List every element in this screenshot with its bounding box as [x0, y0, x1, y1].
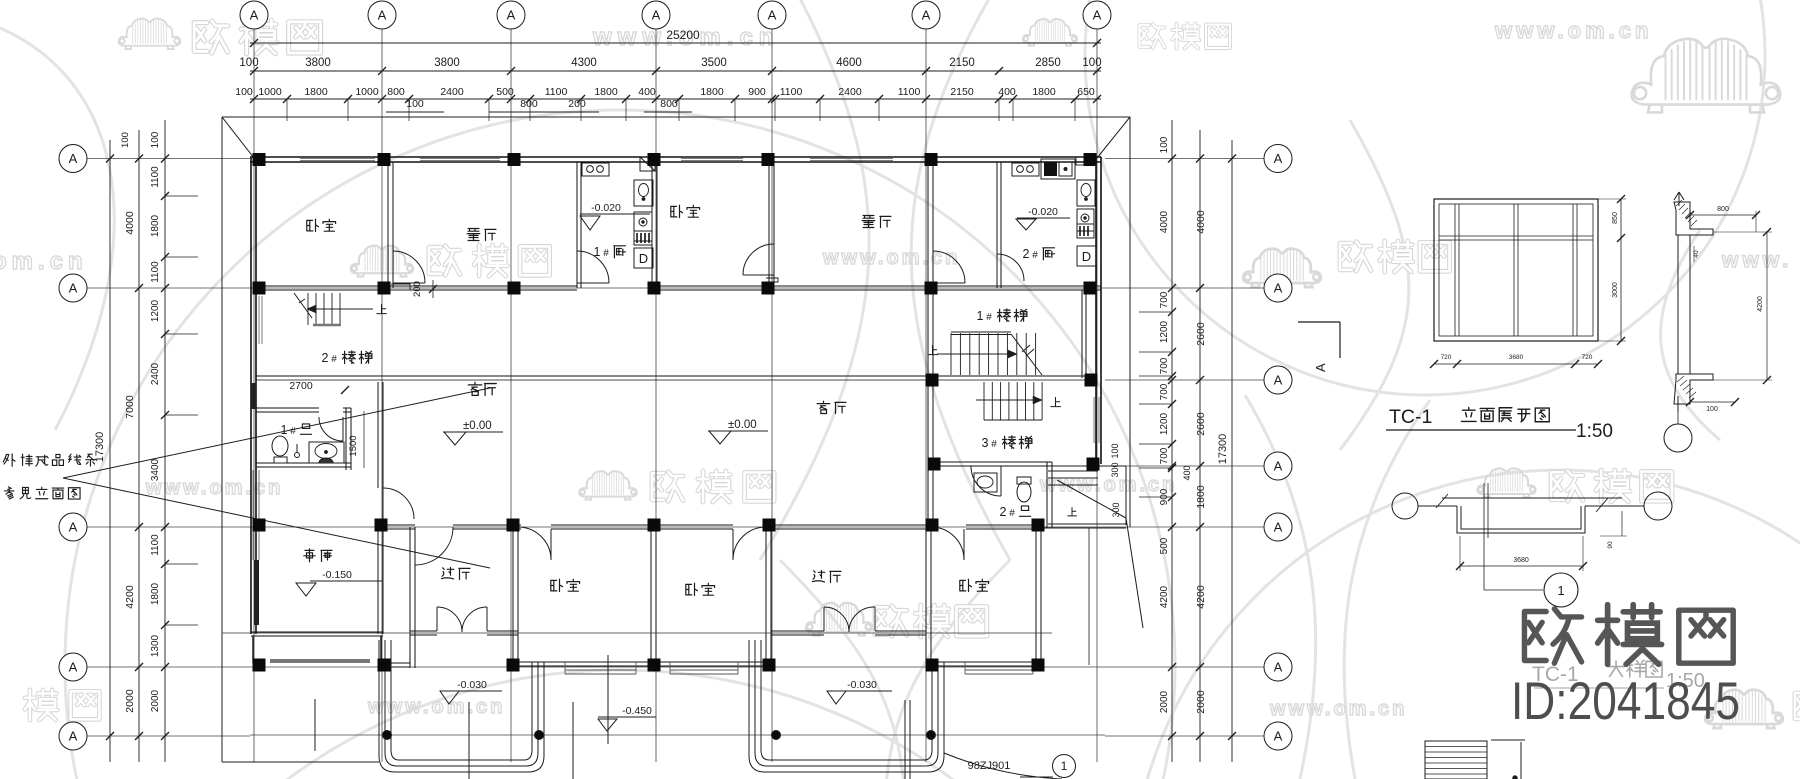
svg-text:1200: 1200: [1159, 320, 1170, 343]
svg-text:3800: 3800: [434, 57, 460, 69]
svg-text:2000: 2000: [1195, 690, 1207, 714]
svg-text:1: 1: [281, 423, 288, 437]
svg-text:3500: 3500: [701, 57, 727, 69]
svg-text:-0.020: -0.020: [591, 202, 621, 214]
svg-text:-0.030: -0.030: [847, 679, 877, 691]
svg-text:A: A: [250, 8, 259, 23]
svg-text:900: 900: [748, 86, 766, 98]
svg-text:40: 40: [1693, 250, 1700, 258]
svg-text:www.: www.: [1721, 249, 1792, 272]
svg-text:100: 100: [235, 86, 253, 98]
svg-text:-0.150: -0.150: [322, 569, 352, 581]
svg-text:400: 400: [1182, 465, 1192, 480]
svg-text:1800: 1800: [1195, 485, 1207, 509]
svg-text:D: D: [1082, 249, 1091, 264]
svg-text:300: 300: [1111, 502, 1121, 517]
svg-text:A: A: [1274, 151, 1283, 166]
svg-text:D: D: [639, 251, 648, 266]
svg-text:800: 800: [660, 98, 678, 110]
svg-text:100: 100: [120, 132, 131, 148]
svg-text:2700: 2700: [289, 380, 313, 392]
svg-text:#: #: [290, 426, 296, 437]
svg-text:2000: 2000: [1159, 690, 1170, 713]
svg-text:1100: 1100: [150, 166, 161, 188]
svg-text:1800: 1800: [150, 214, 161, 237]
svg-text:1: 1: [1557, 583, 1564, 598]
svg-text:2000: 2000: [150, 689, 161, 712]
svg-text:100: 100: [1110, 443, 1120, 458]
svg-text:7000: 7000: [124, 395, 136, 419]
svg-text:700: 700: [1159, 291, 1170, 308]
svg-text:800: 800: [1717, 206, 1729, 213]
svg-text:1500: 1500: [348, 435, 359, 456]
svg-text:ID:2041845: ID:2041845: [1511, 672, 1740, 731]
svg-text:4200: 4200: [1159, 585, 1170, 608]
svg-text:www.om.cn: www.om.cn: [1269, 698, 1407, 720]
svg-text:900: 900: [1159, 488, 1170, 505]
svg-text:#: #: [331, 354, 337, 365]
svg-text:1100: 1100: [898, 86, 921, 98]
svg-text:A: A: [652, 8, 661, 23]
svg-text:25200: 25200: [666, 28, 700, 42]
svg-text:-0.020: -0.020: [1028, 206, 1058, 218]
svg-text:500: 500: [496, 86, 514, 98]
svg-text:400: 400: [638, 86, 656, 98]
svg-text:1: 1: [977, 309, 984, 323]
svg-text:2400: 2400: [440, 86, 464, 98]
svg-text:4600: 4600: [836, 57, 862, 69]
svg-text:1:50: 1:50: [1576, 421, 1613, 442]
svg-text:4000: 4000: [1159, 210, 1170, 233]
svg-text:720: 720: [1582, 354, 1593, 361]
svg-text:4000: 4000: [1195, 210, 1207, 234]
svg-text:-0.030: -0.030: [457, 679, 487, 691]
svg-text:2150: 2150: [949, 57, 975, 69]
svg-text:2400: 2400: [150, 362, 161, 385]
svg-text:700: 700: [1159, 447, 1170, 464]
svg-text:850: 850: [1612, 212, 1619, 224]
svg-text:700: 700: [1159, 357, 1170, 374]
svg-text:A: A: [507, 8, 516, 23]
svg-text:100: 100: [1082, 57, 1101, 69]
svg-text:#: #: [986, 312, 992, 323]
svg-text:2000: 2000: [124, 689, 136, 713]
svg-text:#: #: [991, 439, 997, 450]
svg-text:100: 100: [239, 57, 258, 69]
svg-text:1100: 1100: [150, 534, 161, 556]
svg-text:#: #: [603, 248, 609, 259]
svg-text:1100: 1100: [780, 86, 803, 98]
svg-text:www.om.cn: www.om.cn: [1494, 18, 1652, 43]
svg-text:2: 2: [1000, 505, 1007, 519]
svg-text:±0.00: ±0.00: [463, 420, 492, 432]
svg-text:2150: 2150: [950, 86, 974, 98]
svg-text:1100: 1100: [150, 261, 161, 283]
svg-text:400: 400: [998, 86, 1016, 98]
svg-text:4200: 4200: [1195, 585, 1207, 609]
svg-text:700: 700: [1159, 383, 1170, 400]
svg-text:TC-1: TC-1: [1389, 406, 1432, 428]
svg-text:A: A: [69, 151, 78, 166]
svg-text:200: 200: [568, 98, 586, 110]
svg-text:A: A: [69, 729, 78, 744]
svg-text:800: 800: [520, 98, 538, 110]
svg-text:90: 90: [1607, 541, 1614, 549]
svg-text:3680: 3680: [1513, 557, 1529, 564]
svg-text:650: 650: [1077, 86, 1095, 98]
svg-text:1200: 1200: [150, 299, 161, 322]
svg-text:300: 300: [1110, 462, 1120, 477]
svg-text:1: 1: [594, 245, 601, 259]
svg-text:om.cn: om.cn: [0, 248, 88, 275]
svg-text:1000: 1000: [355, 86, 379, 98]
svg-text:#: #: [1032, 250, 1038, 261]
svg-text:#: #: [1009, 508, 1015, 519]
svg-text:4200: 4200: [124, 585, 136, 609]
svg-text:±0.00: ±0.00: [728, 419, 757, 431]
svg-text:720: 720: [1441, 354, 1452, 361]
svg-text:98ZJ901: 98ZJ901: [968, 760, 1011, 772]
svg-text:100: 100: [1159, 136, 1170, 153]
svg-text:800: 800: [387, 86, 405, 98]
svg-text:2600: 2600: [1195, 412, 1207, 436]
svg-text:A: A: [1274, 459, 1283, 474]
svg-text:3400: 3400: [150, 458, 161, 481]
svg-text:4000: 4000: [124, 211, 136, 235]
svg-text:A: A: [1093, 8, 1102, 23]
svg-text:A: A: [69, 520, 78, 535]
svg-text:A: A: [69, 660, 78, 675]
svg-text:4300: 4300: [571, 57, 597, 69]
svg-text:1800: 1800: [304, 86, 328, 98]
svg-text:1800: 1800: [150, 582, 161, 605]
svg-text:100: 100: [150, 131, 161, 148]
svg-text:1: 1: [1061, 759, 1068, 773]
svg-text:2: 2: [1023, 247, 1030, 261]
svg-text:A: A: [922, 8, 931, 23]
svg-text:A: A: [1274, 660, 1283, 675]
svg-text:1100: 1100: [545, 86, 568, 98]
svg-text:3000: 3000: [1612, 282, 1619, 298]
svg-text:A: A: [768, 8, 777, 23]
svg-text:3800: 3800: [305, 57, 331, 69]
svg-text:4200: 4200: [1757, 296, 1764, 312]
svg-text:500: 500: [1159, 537, 1170, 554]
svg-text:-0.450: -0.450: [622, 705, 652, 717]
svg-text:A: A: [1274, 729, 1283, 744]
svg-text:2: 2: [322, 351, 329, 365]
svg-text:2600: 2600: [1195, 322, 1207, 346]
svg-text:www.om.cn: www.om.cn: [367, 696, 505, 718]
svg-text:1300: 1300: [150, 634, 161, 657]
svg-text:17300: 17300: [94, 432, 106, 463]
svg-text:A: A: [1274, 520, 1283, 535]
svg-text:1800: 1800: [594, 86, 618, 98]
svg-text:www.om.cn: www.om.cn: [822, 247, 960, 269]
svg-text:1200: 1200: [1159, 412, 1170, 435]
svg-text:200: 200: [412, 281, 423, 297]
svg-text:A: A: [69, 281, 78, 296]
svg-text:3680: 3680: [1509, 354, 1524, 361]
svg-text:2400: 2400: [838, 86, 862, 98]
svg-text:A: A: [378, 8, 387, 23]
svg-text:2850: 2850: [1035, 57, 1061, 69]
svg-text:A: A: [1313, 363, 1328, 372]
svg-text:A: A: [1274, 373, 1283, 388]
svg-text:100: 100: [406, 98, 424, 110]
svg-text:1000: 1000: [258, 86, 282, 98]
svg-text:1800: 1800: [1032, 86, 1056, 98]
svg-text:www.om.cn: www.om.cn: [145, 477, 283, 499]
svg-text:A: A: [1274, 281, 1283, 296]
svg-text:1800: 1800: [700, 86, 724, 98]
svg-text:100: 100: [1706, 406, 1718, 413]
svg-text:17300: 17300: [1217, 434, 1229, 465]
svg-text:3: 3: [982, 436, 989, 450]
